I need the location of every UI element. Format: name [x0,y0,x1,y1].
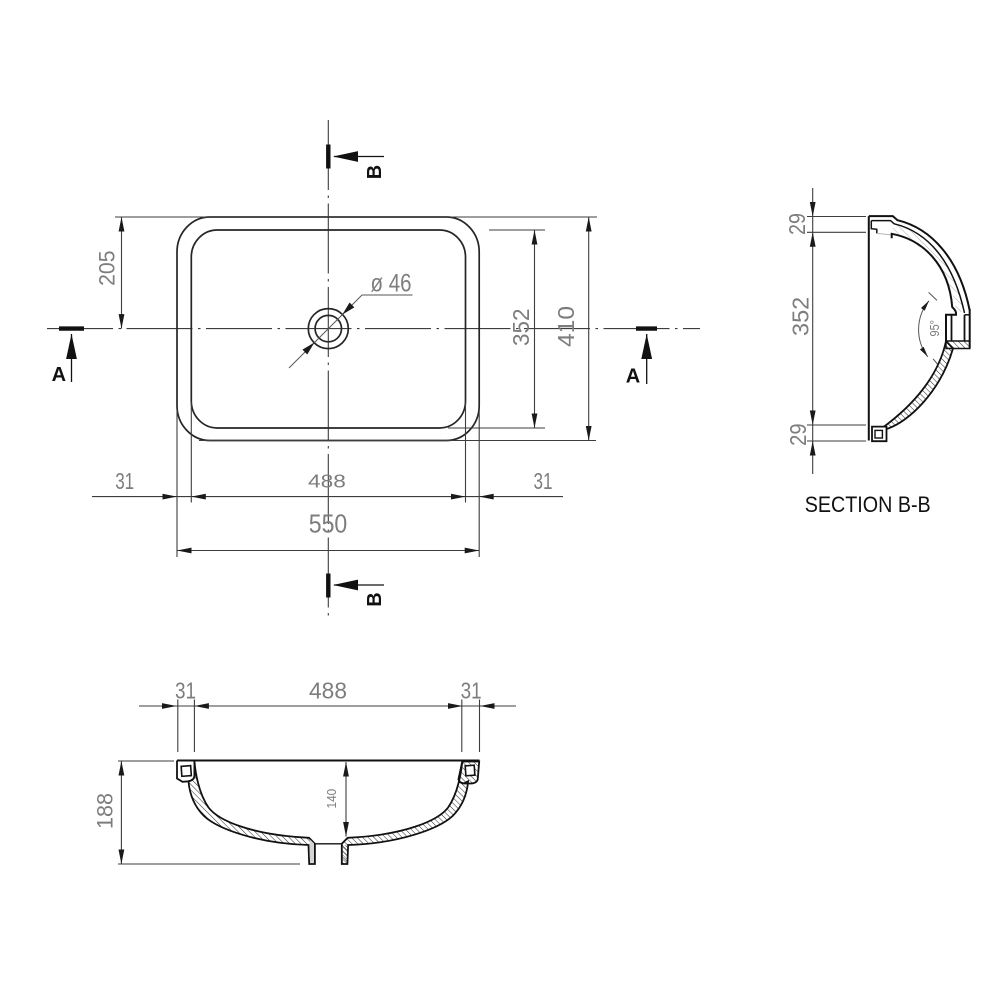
svg-text:188: 188 [92,793,117,829]
svg-text:140: 140 [324,789,339,809]
svg-text:29: 29 [784,213,810,235]
svg-text:410: 410 [553,306,579,347]
svg-text:B: B [364,165,386,179]
svg-text:95°: 95° [928,320,942,337]
svg-text:488: 488 [308,471,346,492]
svg-text:352: 352 [788,297,814,336]
svg-text:550: 550 [309,508,348,538]
svg-text:SECTION B-B: SECTION B-B [805,492,931,517]
svg-text:488: 488 [309,678,347,704]
svg-text:31: 31 [175,678,196,704]
svg-text:31: 31 [534,468,553,494]
svg-text:ø 46: ø 46 [371,270,412,298]
svg-text:205: 205 [94,251,119,286]
svg-text:A: A [626,366,640,388]
svg-text:352: 352 [508,309,534,347]
svg-text:31: 31 [461,678,482,704]
svg-text:31: 31 [115,468,134,494]
svg-text:29: 29 [785,423,811,446]
svg-text:A: A [52,364,66,386]
svg-text:B: B [364,592,386,606]
